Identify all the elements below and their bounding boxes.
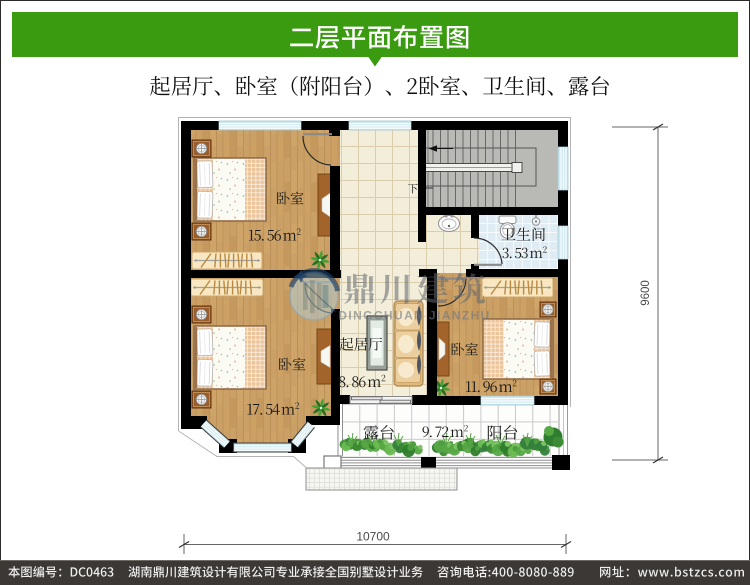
svg-text:DINGCHUAN JIANZHU: DINGCHUAN JIANZHU bbox=[338, 309, 490, 323]
svg-text:10700: 10700 bbox=[356, 530, 390, 544]
svg-text:9600: 9600 bbox=[640, 280, 652, 306]
